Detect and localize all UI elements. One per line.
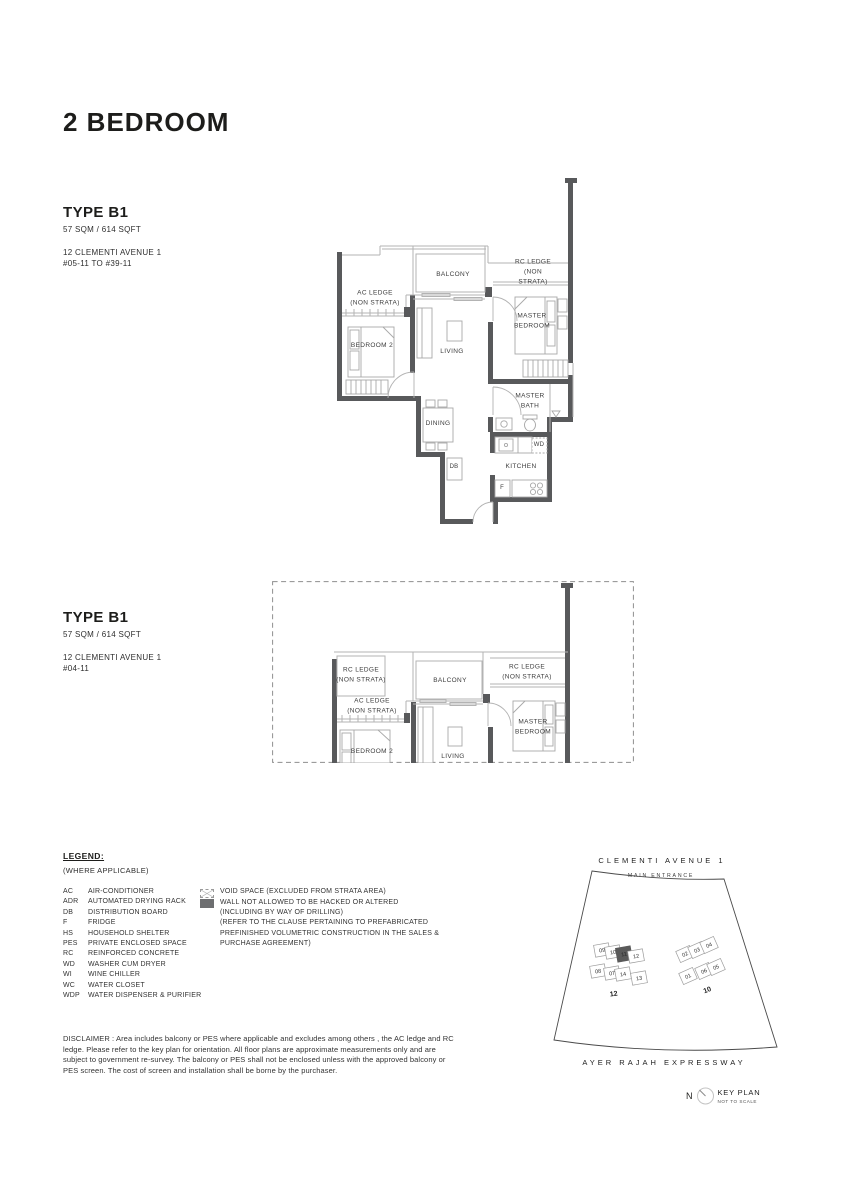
- room-label-bedroom2: BEDROOM 2: [351, 341, 393, 351]
- legend-abbr: WI: [63, 970, 88, 980]
- room-label-ac-ledge: AC LEDGE (NON STRATA): [347, 696, 396, 716]
- floor-plan-type-b1-lower: RC LEDGE (NON STRATA) BALCONY RC LEDGE (…: [272, 581, 634, 763]
- legend-abbr: WDP: [63, 991, 88, 1001]
- key-plan: CLEMENTI AVENUE 1 MAIN ENTRANCE 09 10 11…: [545, 846, 805, 1086]
- legend-abbr: DB: [63, 908, 88, 918]
- legend-abbr: WD: [63, 960, 88, 970]
- unit-type-heading: TYPE B1: [63, 204, 283, 221]
- fixture-label-fridge: F: [500, 485, 504, 491]
- legend-desc: AIR-CONDITIONER: [88, 887, 154, 897]
- unit-area: 57 SQM / 614 SQFT: [63, 630, 283, 639]
- wall-swatch-icon: [200, 899, 214, 908]
- room-label-living: LIVING: [440, 347, 463, 357]
- key-plan-caption-text: KEY PLAN NOT TO SCALE: [718, 1088, 761, 1104]
- legend-item: ADRAUTOMATED DRYING RACK: [63, 897, 201, 907]
- room-label-rc-ledge-right: RC LEDGE (NON STRATA): [502, 662, 551, 682]
- legend-desc: WATER CLOSET: [88, 981, 145, 991]
- room-label-balcony: BALCONY: [433, 676, 467, 686]
- legend-desc: PRIVATE ENCLOSED SPACE: [88, 939, 187, 949]
- legend-desc: HOUSEHOLD SHELTER: [88, 929, 169, 939]
- legend-item: RCREINFORCED CONCRETE: [63, 949, 201, 959]
- keyplan-unit: 13: [636, 975, 643, 982]
- north-label: N: [686, 1091, 693, 1101]
- block-10-label: 10: [703, 986, 713, 995]
- legend-item: WCWATER CLOSET: [63, 981, 201, 991]
- legend-desc: WATER DISPENSER & PURIFIER: [88, 991, 201, 1001]
- levels-line: #05-11 TO #39-11: [63, 258, 283, 269]
- keyplan-unit: 08: [595, 968, 602, 975]
- unit-address: 12 CLEMENTI AVENUE 1 #05-11 TO #39-11: [63, 247, 283, 269]
- key-plan-map: CLEMENTI AVENUE 1 MAIN ENTRANCE 09 10 11…: [545, 846, 805, 1086]
- room-label-bedroom2: BEDROOM 2: [351, 747, 393, 757]
- block-10-buildings: 02 03 04 01 06 05: [676, 936, 726, 984]
- disclaimer-text: DISCLAIMER : Area includes balcony or PE…: [63, 1034, 461, 1077]
- keyplan-unit: 12: [633, 953, 640, 960]
- floor-plan-drawing-lower: [272, 581, 634, 763]
- legend-item: HSHOUSEHOLD SHELTER: [63, 929, 201, 939]
- floor-plan-type-b1-upper: BALCONY RC LEDGE (NON STRATA) AC LEDGE (…: [330, 175, 580, 525]
- legend-symbol-text: WALL NOT ALLOWED TO BE HACKED OR ALTERED…: [220, 898, 439, 950]
- unit-info-upper: TYPE B1 57 SQM / 614 SQFT 12 CLEMENTI AV…: [63, 204, 283, 269]
- legend-abbr: ADR: [63, 897, 88, 907]
- legend-desc: REINFORCED CONCRETE: [88, 949, 179, 959]
- legend-item: DBDISTRIBUTION BOARD: [63, 908, 201, 918]
- room-label-master-bedroom: MASTER BEDROOM: [514, 311, 550, 331]
- legend-desc: FRIDGE: [88, 918, 116, 928]
- key-plan-caption: N KEY PLAN NOT TO SCALE: [686, 1086, 760, 1105]
- legend-list: ACAIR-CONDITIONER ADRAUTOMATED DRYING RA…: [63, 887, 201, 1001]
- legend-title: LEGEND:: [63, 851, 104, 861]
- room-label-master-bath: MASTER BATH: [515, 391, 544, 411]
- legend-symbols: VOID SPACE (EXCLUDED FROM STRATA AREA) W…: [200, 887, 439, 950]
- address-line: 12 CLEMENTI AVENUE 1: [63, 652, 283, 663]
- room-label-balcony: BALCONY: [436, 270, 470, 280]
- keyplan-unit: 14: [620, 971, 627, 978]
- key-plan-scale-note: NOT TO SCALE: [718, 1099, 761, 1104]
- legend-desc: WASHER CUM DRYER: [88, 960, 166, 970]
- site-boundary: [554, 871, 777, 1050]
- road-label-bottom: AYER RAJAH EXPRESSWAY: [582, 1058, 745, 1067]
- legend-item: ACAIR-CONDITIONER: [63, 887, 201, 897]
- compass-icon: [696, 1086, 715, 1105]
- legend-item: WDPWATER DISPENSER & PURIFIER: [63, 991, 201, 1001]
- legend-item: PESPRIVATE ENCLOSED SPACE: [63, 939, 201, 949]
- legend-desc: WINE CHILLER: [88, 970, 140, 980]
- legend-abbr: AC: [63, 887, 88, 897]
- room-label-living: LIVING: [441, 752, 464, 762]
- block-12-label: 12: [609, 990, 618, 998]
- legend-symbol-text: VOID SPACE (EXCLUDED FROM STRATA AREA): [220, 887, 386, 897]
- legend-abbr: RC: [63, 949, 88, 959]
- page-title: 2 BEDROOM: [63, 107, 229, 138]
- legend-abbr: WC: [63, 981, 88, 991]
- legend-subtitle: (WHERE APPLICABLE): [63, 866, 149, 875]
- doors-group: [488, 703, 511, 726]
- unit-type-heading: TYPE B1: [63, 609, 283, 626]
- legend-item: WDWASHER CUM DRYER: [63, 960, 201, 970]
- legend-abbr: PES: [63, 939, 88, 949]
- room-label-master-bedroom: MASTER BEDROOM: [515, 717, 551, 737]
- legend-abbr: F: [63, 918, 88, 928]
- legend-symbol-void: VOID SPACE (EXCLUDED FROM STRATA AREA): [200, 887, 439, 898]
- legend-item: WIWINE CHILLER: [63, 970, 201, 980]
- legend-abbr: HS: [63, 929, 88, 939]
- legend-desc: AUTOMATED DRYING RACK: [88, 897, 186, 907]
- road-label-top: CLEMENTI AVENUE 1: [598, 856, 725, 865]
- room-label-dining: DINING: [426, 419, 451, 429]
- void-space-swatch-icon: [200, 889, 214, 898]
- room-label-ac-ledge: AC LEDGE (NON STRATA): [350, 288, 399, 308]
- room-label-rc-ledge-left: RC LEDGE (NON STRATA): [336, 665, 385, 685]
- room-label-rc-ledge: RC LEDGE (NON STRATA): [510, 257, 557, 286]
- address-line: 12 CLEMENTI AVENUE 1: [63, 247, 283, 258]
- unit-info-lower: TYPE B1 57 SQM / 614 SQFT 12 CLEMENTI AV…: [63, 609, 283, 674]
- block-12-buildings: 09 10 11 12 08 07 14 13: [590, 943, 648, 985]
- legend-desc: DISTRIBUTION BOARD: [88, 908, 168, 918]
- keyplan-unit-highlighted: 11: [621, 952, 628, 959]
- key-plan-title: KEY PLAN: [718, 1088, 761, 1097]
- room-label-kitchen: KITCHEN: [506, 462, 537, 472]
- unit-address: 12 CLEMENTI AVENUE 1 #04-11: [63, 652, 283, 674]
- fixture-label-db: DB: [450, 464, 459, 470]
- levels-line: #04-11: [63, 663, 283, 674]
- unit-area: 57 SQM / 614 SQFT: [63, 225, 283, 234]
- legend-symbol-wall: WALL NOT ALLOWED TO BE HACKED OR ALTERED…: [200, 898, 439, 950]
- fixture-label-wd: WD: [534, 442, 544, 448]
- legend-item: FFRIDGE: [63, 918, 201, 928]
